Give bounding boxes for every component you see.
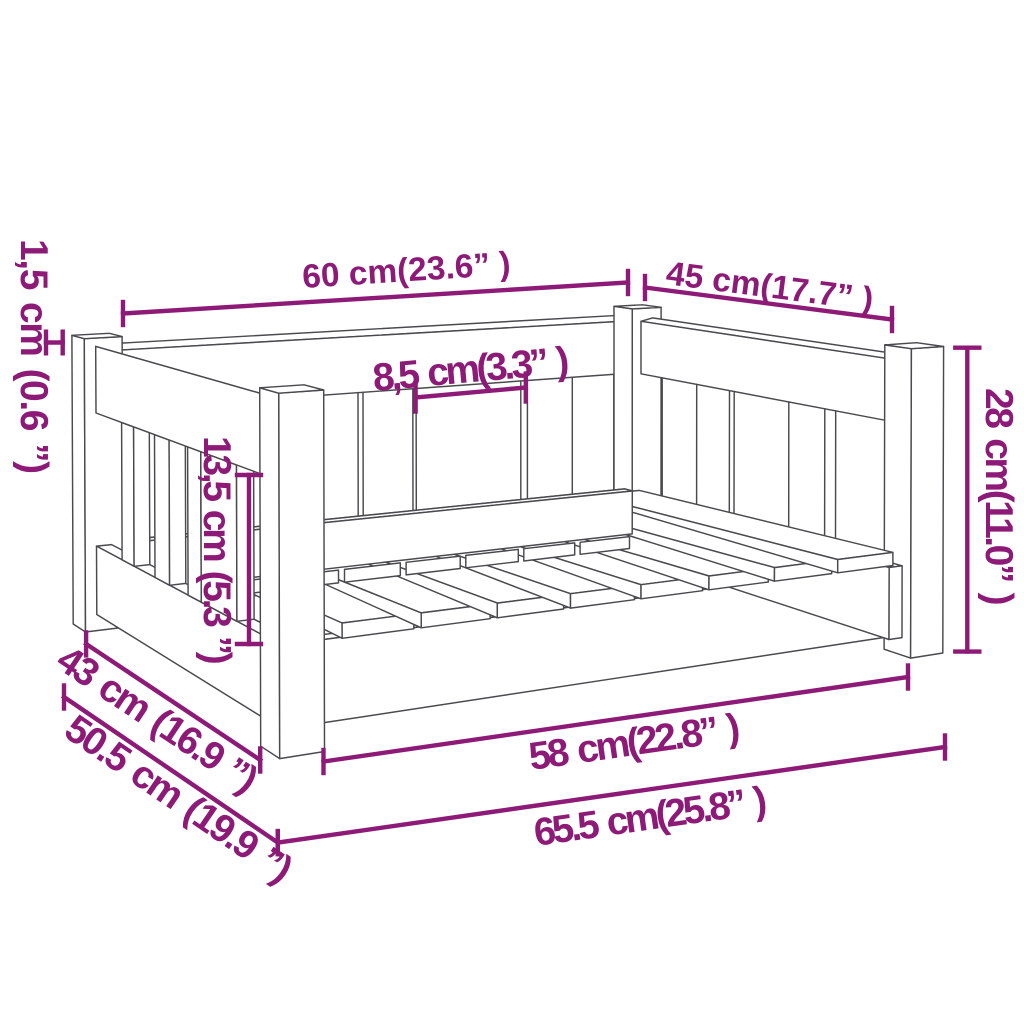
svg-text:13,5 cm (5.3 ”): 13,5 cm (5.3 ”) xyxy=(195,436,238,664)
svg-text:60 cm(23.6” ): 60 cm(23.6” ) xyxy=(301,246,512,296)
svg-text:45 cm(17.7” ): 45 cm(17.7” ) xyxy=(664,255,876,319)
svg-text:28 cm(11.0” ): 28 cm(11.0” ) xyxy=(977,388,1020,605)
svg-text:1,5 cm (0.6 ”): 1,5 cm (0.6 ”) xyxy=(12,239,55,473)
